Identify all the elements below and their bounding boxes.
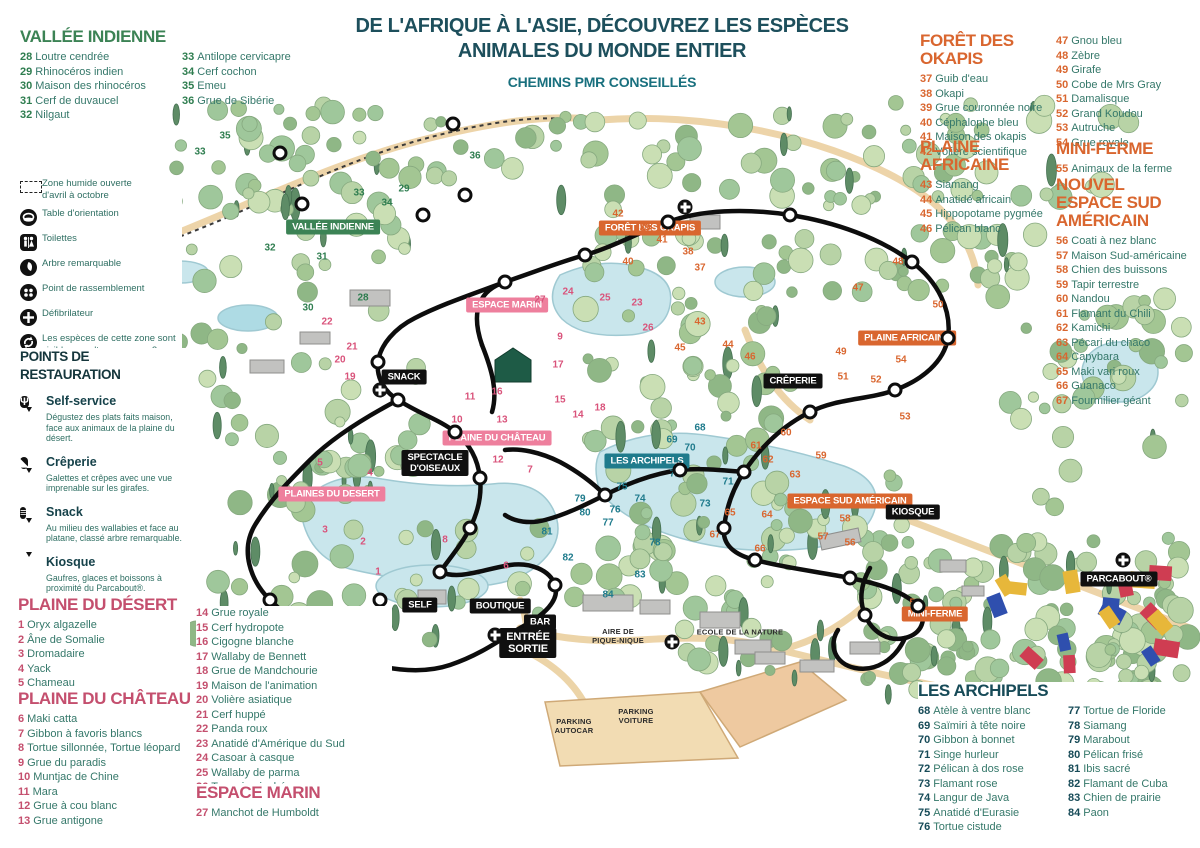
- species-item: 7Gibbon à favoris blancs: [18, 727, 196, 742]
- creperie-icon: ◣: [20, 453, 46, 494]
- legend-item: Arbre remarquable: [20, 258, 182, 276]
- species-item: 59Tapir terrestre: [1056, 278, 1200, 293]
- species-item: 61Flamant du Chili: [1056, 307, 1200, 322]
- section-title: VALLÉE INDIENNE: [20, 28, 390, 46]
- species-item: 17Wallaby de Bennett: [196, 650, 392, 665]
- species-item: 40Céphalophe bleu: [920, 116, 1056, 131]
- orientation-table-icon: [20, 209, 42, 226]
- self-service-icon: Ψ: [20, 392, 46, 444]
- species-item: 76Tortue cistude: [918, 820, 1054, 835]
- species-item: 43Siamang: [920, 178, 1060, 193]
- defibrillator-icon: [20, 309, 42, 326]
- species-item: 56Coati à nez blanc: [1056, 234, 1200, 249]
- species-item: 13Grue antigone: [18, 814, 196, 829]
- species-item: 38Okapi: [920, 87, 1056, 102]
- snack-icon: ≡: [20, 503, 46, 544]
- species-item: 81Ibis sacré: [1068, 762, 1200, 777]
- species-item: 69Saïmiri à tête noire: [918, 719, 1054, 734]
- species-item: 45Hippopotame pygmée: [920, 207, 1060, 222]
- section-chateau-suite: 14Grue royale15Cerf hydropote16Cigogne b…: [196, 606, 392, 795]
- restauration-item: ≡ Snack Au milieu des wallabies et face …: [20, 503, 190, 544]
- section-mini-ferme: MINI-FERME 55Animaux de la ferme: [1056, 140, 1198, 177]
- species-item: 4Yack: [18, 662, 190, 677]
- species-item: 15Cerf hydropote: [196, 621, 392, 636]
- section-africaine-suite: 47Gnou bleu48Zèbre49Girafe50Cobe de Mrs …: [1056, 34, 1198, 150]
- species-item: 51Damalisque: [1056, 92, 1198, 107]
- legend-item: Toilettes: [20, 233, 182, 251]
- species-item: 64Capybara: [1056, 350, 1200, 365]
- species-item: 21Cerf huppé: [196, 708, 392, 723]
- species-item: 10Muntjac de Chine: [18, 770, 196, 785]
- species-item: 6Maki catta: [18, 712, 196, 727]
- species-item: 14Grue royale: [196, 606, 392, 621]
- species-item: 27Manchot de Humboldt: [196, 806, 392, 821]
- species-item: 62Kamichi: [1056, 321, 1200, 336]
- species-item: 16Cigogne blanche: [196, 635, 392, 650]
- species-item: 53Autruche: [1056, 121, 1198, 136]
- section-title: MINI-FERME: [1056, 140, 1198, 158]
- map-legend: Zone humide ouverte d'avril à octobre Ta…: [20, 178, 182, 375]
- species-item: 46Pélican blanc: [920, 222, 1060, 237]
- species-item: 22Panda roux: [196, 722, 392, 737]
- species-item: 28Loutre cendrée: [20, 50, 168, 65]
- species-item: 8Tortue sillonnée, Tortue léopard: [18, 741, 196, 756]
- restauration-title: POINTS DE RESTAURATION: [20, 348, 190, 384]
- species-item: 83Chien de prairie: [1068, 791, 1200, 806]
- section-title: PLAINE AFRICAINE: [920, 138, 1060, 174]
- species-item: 12Grue à cou blanc: [18, 799, 196, 814]
- species-item: 48Zèbre: [1056, 49, 1198, 64]
- species-item: 65Maki vari roux: [1056, 365, 1200, 380]
- species-item: 33Antilope cervicapre: [182, 50, 332, 65]
- species-item: 37Guib d'eau: [920, 72, 1056, 87]
- species-item: 57Maison Sud-américaine: [1056, 249, 1200, 264]
- species-item: 25Wallaby de parma: [196, 766, 392, 781]
- section-title: FORÊT DES OKAPIS: [920, 32, 1056, 68]
- species-item: 31Cerf de duvaucel: [20, 94, 168, 109]
- species-item: 67Fourmilier géant: [1056, 394, 1200, 409]
- species-item: 18Grue de Mandchourie: [196, 664, 392, 679]
- restauration-item: ◣ Crêperie Galettes et crêpes avec une v…: [20, 453, 190, 494]
- restauration-item: Kiosque Gaufres, glaces et boissons à pr…: [20, 553, 190, 594]
- species-item: 72Pélican à dos rose: [918, 762, 1054, 777]
- zoo-park-map-poster: VALLÉE INDIENNEFORÊT DES OKAPISESPACE MA…: [0, 0, 1200, 848]
- kiosque-icon: [20, 553, 46, 594]
- toilets-icon: [20, 234, 42, 251]
- species-item: 77Tortue de Floride: [1068, 704, 1200, 719]
- species-item: 30Maison des rhinocéros: [20, 79, 168, 94]
- species-item: 49Girafe: [1056, 63, 1198, 78]
- wetland-icon: [20, 179, 42, 193]
- title-line1: DE L'AFRIQUE À L'ASIE, DÉCOUVREZ LES ESP…: [355, 15, 848, 37]
- legend-item: Zone humide ouverte d'avril à octobre: [20, 178, 182, 201]
- species-item: 11Mara: [18, 785, 196, 800]
- assembly-point-icon: [20, 284, 42, 301]
- section-plaine-chateau: PLAINE DU CHÂTEAU 6Maki catta7Gibbon à f…: [18, 690, 196, 828]
- species-item: 44Anatidé africain: [920, 193, 1060, 208]
- species-item: 79Marabout: [1068, 733, 1200, 748]
- species-item: 50Cobe de Mrs Gray: [1056, 78, 1198, 93]
- remarkable-tree-icon: [20, 259, 42, 276]
- legend-item: Table d'orientation: [20, 208, 182, 226]
- species-item: 80Pélican frisé: [1068, 748, 1200, 763]
- section-vallee-indienne: VALLÉE INDIENNE 28Loutre cendrée29Rhinoc…: [20, 28, 390, 123]
- species-item: 82Flamant de Cuba: [1068, 777, 1200, 792]
- section-title: ESPACE MARIN: [196, 784, 392, 802]
- section-archipels: LES ARCHIPELS 68Atèle à ventre blanc69Sa…: [918, 682, 1200, 835]
- title-line2: ANIMALES DU MONDE ENTIER: [458, 40, 746, 62]
- species-item: 24Casoar à casque: [196, 751, 392, 766]
- species-item: 36Grue de Sibérie: [182, 94, 332, 109]
- species-item: 52Grand Koudou: [1056, 107, 1198, 122]
- species-item: 39Grue couronnée noire: [920, 101, 1056, 116]
- species-item: 2Âne de Somalie: [18, 633, 190, 648]
- species-item: 75Anatidé d'Eurasie: [918, 806, 1054, 821]
- species-item: 29Rhinocéros indien: [20, 65, 168, 80]
- poster-subtitle: CHEMINS PMR CONSEILLÉS: [352, 74, 852, 90]
- species-item: 84Paon: [1068, 806, 1200, 821]
- section-nouvel-espace: NOUVEL ESPACE SUD AMÉRICAIN 56Coati à ne…: [1056, 176, 1200, 408]
- species-item: 9Grue du paradis: [18, 756, 196, 771]
- section-title: PLAINE DU CHÂTEAU: [18, 690, 196, 708]
- legend-item: Point de rassemblement: [20, 283, 182, 301]
- section-title: PLAINE DU DÉSERT: [18, 596, 190, 614]
- section-espace-marin: ESPACE MARIN 27Manchot de Humboldt: [196, 784, 392, 821]
- restauration-item: Ψ Self-service Dégustez des plats faits …: [20, 392, 190, 444]
- species-item: 60Nandou: [1056, 292, 1200, 307]
- species-item: 47Gnou bleu: [1056, 34, 1198, 49]
- species-item: 32Nilgaut: [20, 108, 168, 123]
- species-item: 58Chien des buissons: [1056, 263, 1200, 278]
- species-item: 3Dromadaire: [18, 647, 190, 662]
- species-item: 71Singe hurleur: [918, 748, 1054, 763]
- species-item: 70Gibbon à bonnet: [918, 733, 1054, 748]
- section-plaine-africaine: PLAINE AFRICAINE 43Siamang44Anatidé afri…: [920, 138, 1060, 236]
- poster-title: DE L'AFRIQUE À L'ASIE, DÉCOUVREZ LES ESP…: [352, 14, 852, 90]
- species-item: 19Maison de l'animation: [196, 679, 392, 694]
- species-item: 23Anatidé d'Amérique du Sud: [196, 737, 392, 752]
- species-item: 1Oryx algazelle: [18, 618, 190, 633]
- species-item: 68Atèle à ventre blanc: [918, 704, 1054, 719]
- section-title: NOUVEL ESPACE SUD AMÉRICAIN: [1056, 176, 1176, 230]
- species-item: 66Guanaco: [1056, 379, 1200, 394]
- section-plaine-desert: PLAINE DU DÉSERT 1Oryx algazelle2Âne de …: [18, 596, 190, 691]
- species-item: 35Emeu: [182, 79, 332, 94]
- species-item: 78Siamang: [1068, 719, 1200, 734]
- species-item: 63Pécari du chaco: [1056, 336, 1200, 351]
- species-item: 73Flamant rose: [918, 777, 1054, 792]
- species-item: 20Volière asiatique: [196, 693, 392, 708]
- section-title: LES ARCHIPELS: [918, 682, 1200, 700]
- legend-item: Défibrilateur: [20, 308, 182, 326]
- species-item: 74Langur de Java: [918, 791, 1054, 806]
- species-item: 34Cerf cochon: [182, 65, 332, 80]
